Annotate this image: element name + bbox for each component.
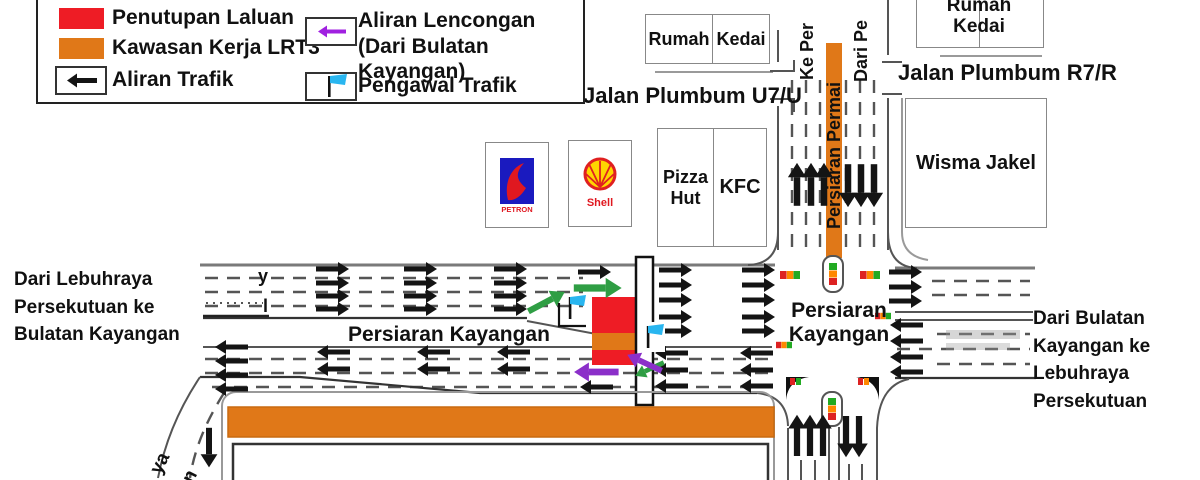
- legend-label-work-zone: Kawasan Kerja LRT3: [112, 35, 320, 61]
- work-zone-hoarding-box: [233, 444, 768, 480]
- building-rumah-kedai-right-label: Rumah Kedai: [916, 0, 1042, 38]
- shell-logo-icon: Shell: [578, 154, 622, 214]
- svg-text:Shell: Shell: [587, 197, 613, 209]
- petron-logo-icon: PETRON: [497, 156, 537, 214]
- shell-station: Shell: [568, 140, 632, 227]
- building-wisma-jakel: Wisma Jakel: [905, 98, 1047, 228]
- road-label-plumbum-r7r: Jalan Plumbum R7/R: [898, 61, 1117, 86]
- building-rumah-left: Rumah: [645, 14, 713, 64]
- legend-label-traffic-flow: Aliran Trafik: [112, 67, 233, 93]
- road-label-ke-persiaran: Ke Per: [797, 0, 819, 80]
- purple-diversion-arrow: [574, 363, 619, 382]
- road-label-kayangan-center: Persiaran Kayangan: [786, 299, 892, 346]
- note-from-lebuhraya: Dari Lebuhraya Persekutuan ke Bulatan Ka…: [14, 266, 200, 349]
- work-zone-swatch: [59, 38, 104, 59]
- green-diversion-arrow: [524, 284, 569, 319]
- svg-text:PETRON: PETRON: [501, 205, 532, 214]
- building-kedai-left: Kedai: [712, 14, 770, 64]
- diversion-arrow-icon: [305, 17, 357, 46]
- legend: Penutupan Laluan Kawasan Kerja LRT3 Alir…: [36, 0, 585, 104]
- text-fragment: l: [263, 296, 268, 316]
- note-from-bulatan: Dari Bulatan Kayangan ke Lebuhraya Perse…: [1033, 305, 1181, 415]
- road-label-plumbum-u7u: Jalan Plumbum U7/U: [583, 84, 802, 109]
- closure-swatch: [59, 8, 104, 29]
- building-pizza-hut: Pizza Hut: [658, 129, 714, 246]
- traffic-marshal-icon: [305, 72, 357, 101]
- building-pizza-kfc: Pizza Hut KFC: [657, 128, 767, 247]
- lrt3-work-zone: [222, 392, 774, 480]
- road-label-dari-persiaran: Dari Pe: [851, 0, 873, 82]
- road-label-persiaran-permai: Persiaran Permai: [824, 53, 844, 258]
- flag-icon: [569, 295, 586, 319]
- building-kfc: KFC: [714, 176, 766, 199]
- traffic-flow-icon: [55, 66, 107, 95]
- legend-label-marshal: Pengawal Trafik: [358, 73, 517, 99]
- petron-station: PETRON: [485, 142, 549, 228]
- lrt3-work-zone-bar: [228, 407, 774, 437]
- traffic-diversion-map: Penutupan Laluan Kawasan Kerja LRT3 Alir…: [0, 0, 1200, 480]
- green-diversion-arrow: [574, 278, 622, 298]
- legend-label-closure: Penutupan Laluan: [112, 5, 294, 31]
- text-fragment: y: [258, 266, 268, 286]
- road-label-kayangan-west: Persiaran Kayangan: [348, 323, 550, 347]
